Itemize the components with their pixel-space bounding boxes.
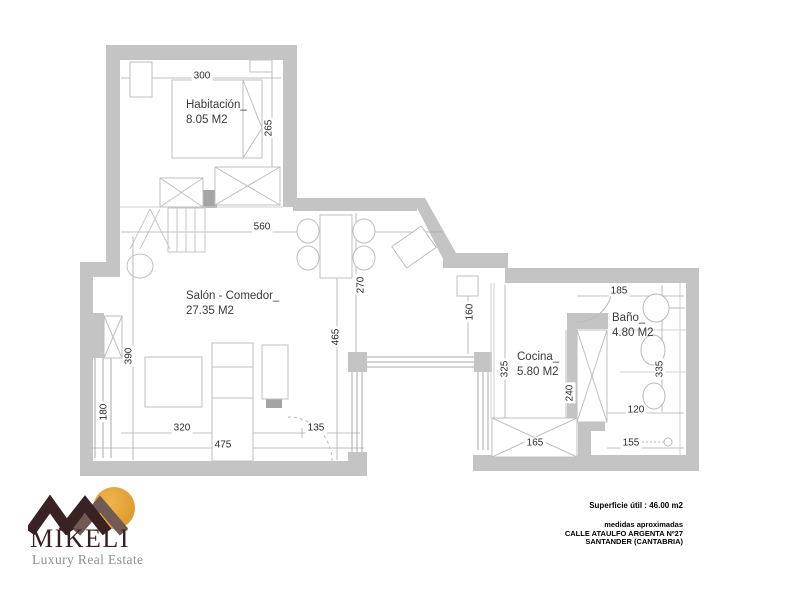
- wardrobe-2: [215, 167, 280, 205]
- dim-165: 165: [525, 438, 546, 449]
- dim-120: 120: [626, 405, 647, 416]
- tv-cabinet: [262, 345, 288, 399]
- company-logo: MIKELI Luxury Real Estate: [28, 484, 178, 584]
- wall-left-jog: [80, 262, 120, 277]
- plan-info: Superficie útil : 46.00 m2 medidas aprox…: [565, 501, 683, 547]
- brand-tagline: Luxury Real Estate: [32, 553, 143, 567]
- wall-niche-back: [93, 313, 104, 360]
- chair: [297, 246, 319, 270]
- wall-bedroom-top: [106, 45, 297, 60]
- room-name: Salón - Comedor_: [186, 289, 279, 304]
- wall-top-right-a: [443, 253, 508, 268]
- room-name: Cocina_: [517, 350, 559, 365]
- terrace-pillar-tr: [474, 352, 492, 372]
- shelf: [250, 60, 272, 72]
- furniture: [104, 60, 607, 461]
- dim-475: 475: [213, 440, 234, 451]
- dim-390: 390: [124, 346, 135, 367]
- tall-closet: [577, 330, 607, 422]
- room-area: 4.80 M2: [612, 326, 654, 341]
- radiator-niche: [104, 316, 122, 358]
- dim-135: 135: [306, 423, 327, 434]
- wall-top-mid: [293, 198, 417, 211]
- wall-closet-left: [567, 313, 577, 425]
- superficie-text: Superficie útil : 46.00 m2: [565, 501, 683, 510]
- nightstand: [130, 62, 152, 97]
- dim-265: 265: [264, 118, 275, 139]
- room-label-habitacion: Habitación_ 8.05 M2: [186, 98, 247, 128]
- room-label-salon: Salón - Comedor_ 27.35 M2: [186, 289, 279, 319]
- wardrobe-1: [160, 178, 203, 207]
- wall-bottom-left: [80, 461, 367, 476]
- dim-335: 335: [655, 359, 666, 380]
- room-name: Baño_: [612, 311, 654, 326]
- dim-155: 155: [621, 438, 642, 449]
- room-area: 27.35 M2: [186, 304, 279, 319]
- plant: [127, 254, 153, 278]
- dim-465: 465: [331, 327, 342, 348]
- room-label-bano: Baño_ 4.80 M2: [612, 311, 654, 341]
- address-line2: SANTANDER (CANTABRIA): [565, 538, 683, 547]
- wall-left: [80, 262, 93, 476]
- chair: [297, 219, 319, 243]
- dim-240: 240: [565, 383, 576, 404]
- dim-180: 180: [99, 402, 110, 423]
- brand-name: MIKELI: [30, 526, 130, 552]
- wall-right: [686, 268, 699, 464]
- room-label-cocina: Cocina_ 5.80 M2: [517, 350, 559, 380]
- room-area: 8.05 M2: [186, 113, 247, 128]
- rug: [145, 357, 202, 407]
- dim-325: 325: [500, 359, 511, 380]
- dim-160: 160: [465, 302, 476, 323]
- dim-560: 560: [252, 222, 273, 233]
- chair: [353, 219, 375, 243]
- wall-bedroom-right: [283, 45, 297, 207]
- dim-320: 320: [172, 423, 193, 434]
- stairs: [130, 208, 205, 252]
- shower-head: [664, 438, 672, 446]
- cupboard: [457, 276, 478, 296]
- room-name: Habitación_: [186, 98, 247, 113]
- terrace-pillar-bl: [348, 452, 367, 474]
- chair: [353, 246, 375, 270]
- dim-300: 300: [192, 71, 213, 82]
- wall-top-right-b: [505, 268, 699, 283]
- dining-table: [320, 215, 352, 278]
- terrace-pillar-tl: [348, 352, 367, 372]
- floorplan-page: 300 265 560 270 465 160 390 180 320 475 …: [0, 0, 800, 600]
- dim-185: 185: [609, 286, 630, 297]
- dim-270: 270: [356, 275, 367, 296]
- room-area: 5.80 M2: [517, 365, 559, 380]
- wall-bedroom-left: [106, 45, 120, 265]
